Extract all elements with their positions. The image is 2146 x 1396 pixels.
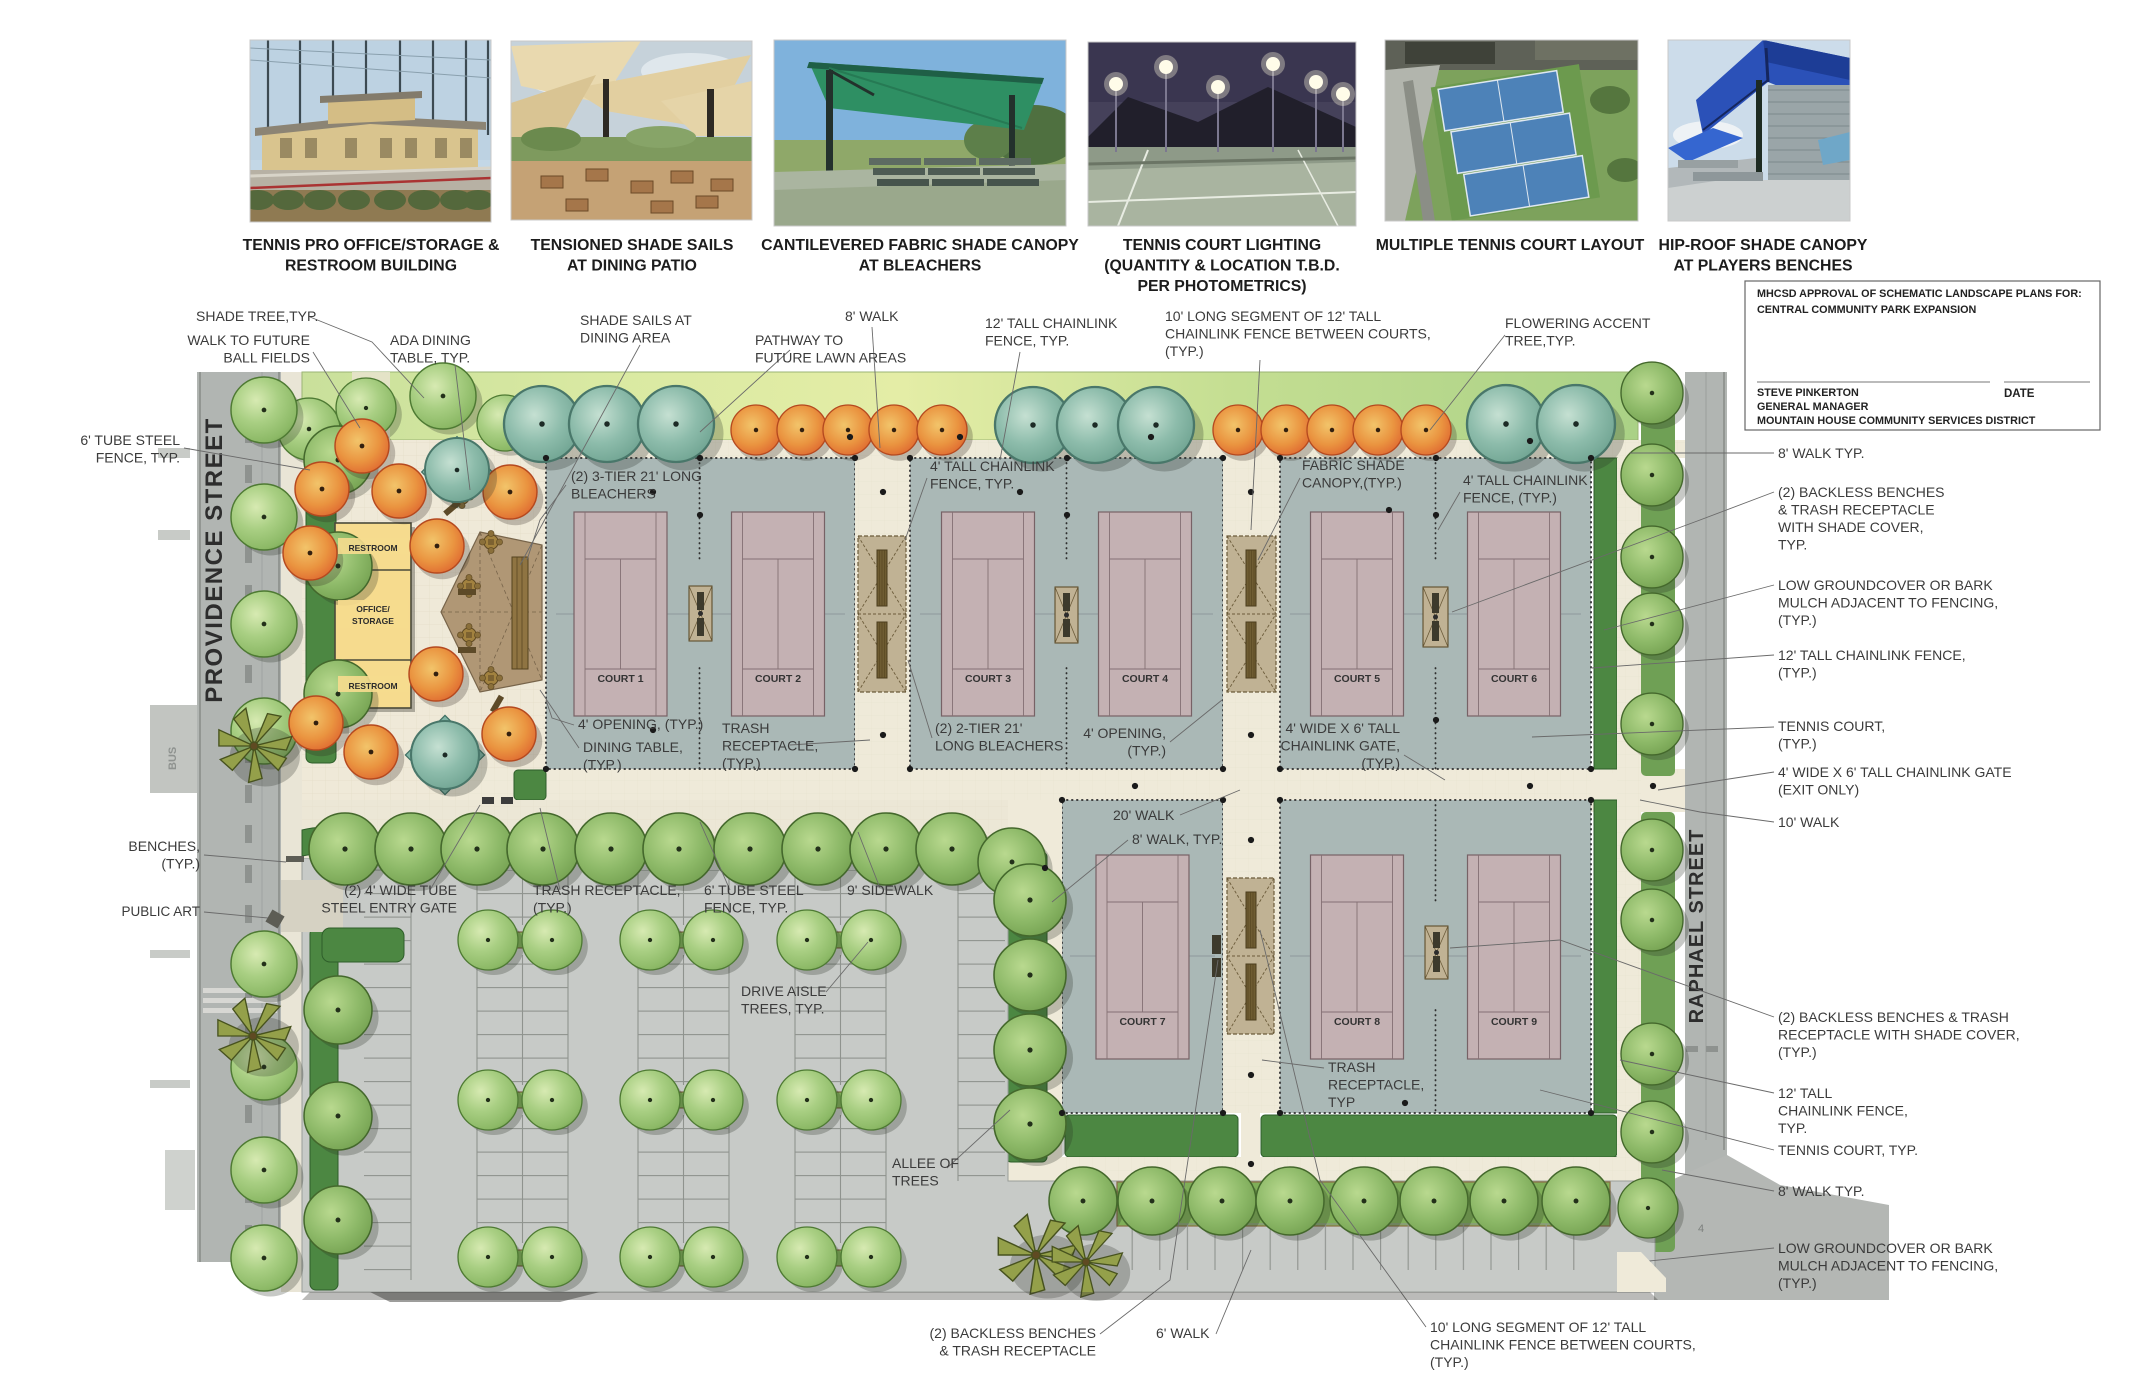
svg-text:GENERAL MANAGER: GENERAL MANAGER [1757,401,1869,413]
svg-text:TENNIS COURT,(TYP.): TENNIS COURT,(TYP.) [1778,718,1885,752]
svg-text:PUBLIC ART: PUBLIC ART [121,904,200,919]
svg-text:COURT 5: COURT 5 [1334,673,1380,685]
svg-text:8' WALK, TYP.: 8' WALK, TYP. [1132,831,1222,847]
svg-text:COURT 6: COURT 6 [1491,673,1537,685]
svg-text:10' LONG SEGMENT OF 12' TALLCH: 10' LONG SEGMENT OF 12' TALLCHAINLINK FE… [1165,308,1431,359]
svg-text:8' WALK TYP.: 8' WALK TYP. [1778,1183,1864,1199]
svg-text:RESTROOM: RESTROOM [348,681,397,691]
svg-text:PROVIDENCE STREET: PROVIDENCE STREET [201,417,228,703]
svg-text:HIP-ROOF SHADE CANOPYAT PLAYER: HIP-ROOF SHADE CANOPYAT PLAYERS BENCHES [1659,237,1868,275]
svg-text:12' TALL CHAINLINKFENCE, TYP.: 12' TALL CHAINLINKFENCE, TYP. [985,315,1118,349]
svg-text:MULTIPLE TENNIS COURT LAYOUT: MULTIPLE TENNIS COURT LAYOUT [1376,237,1645,254]
svg-text:WALK TO FUTUREBALL FIELDS: WALK TO FUTUREBALL FIELDS [187,332,310,366]
svg-text:(2) BACKLESS BENCHES& TRASH RE: (2) BACKLESS BENCHES& TRASH RECEPTACLEWI… [1778,484,1945,553]
svg-text:20' WALK: 20' WALK [1113,807,1175,823]
svg-text:SHADE TREE,TYP.: SHADE TREE,TYP. [196,308,318,324]
svg-text:12' TALL CHAINLINK FENCE,(TYP.: 12' TALL CHAINLINK FENCE,(TYP.) [1778,647,1966,681]
svg-text:9' SIDEWALK: 9' SIDEWALK [847,882,934,898]
svg-text:RESTROOM: RESTROOM [348,543,397,553]
svg-text:STEVE PINKERTON: STEVE PINKERTON [1757,387,1859,399]
svg-text:TENNIS COURT LIGHTING(QUANTITY: TENNIS COURT LIGHTING(QUANTITY & LOCATIO… [1104,237,1339,295]
svg-text:MHCSD APPROVAL OF SCHEMATIC LA: MHCSD APPROVAL OF SCHEMATIC LANDSCAPE PL… [1757,288,2082,300]
svg-text:COURT 1: COURT 1 [597,673,643,685]
svg-text:10' LONG SEGMENT OF 12' TALLCH: 10' LONG SEGMENT OF 12' TALLCHAINLINK FE… [1430,1319,1696,1370]
svg-text:LOW GROUNDCOVER OR BARKMULCH A: LOW GROUNDCOVER OR BARKMULCH ADJACENT TO… [1778,577,1998,628]
svg-text:8' WALK TYP.: 8' WALK TYP. [1778,445,1864,461]
svg-text:(2) BACKLESS BENCHES & TRASHRE: (2) BACKLESS BENCHES & TRASHRECEPTACLE W… [1778,1009,2020,1060]
svg-text:12' TALLCHAINLINK FENCE,TYP.: 12' TALLCHAINLINK FENCE,TYP. [1778,1085,1908,1136]
svg-text:6' TUBE STEELFENCE, TYP.: 6' TUBE STEELFENCE, TYP. [80,432,180,466]
svg-text:FLOWERING ACCENTTREE,TYP.: FLOWERING ACCENTTREE,TYP. [1505,315,1651,349]
svg-text:COURT 7: COURT 7 [1119,1016,1165,1028]
svg-text:BENCHES,(TYP.): BENCHES,(TYP.) [128,838,200,872]
svg-text:COURT 4: COURT 4 [1122,673,1168,685]
svg-text:CENTRAL COMMUNITY PARK EXPANSI: CENTRAL COMMUNITY PARK EXPANSION [1757,304,1977,316]
svg-text:RAPHAEL STREET: RAPHAEL STREET [1686,829,1708,1024]
svg-text:OFFICE/: OFFICE/ [356,604,390,614]
svg-text:TENNIS COURT, TYP.: TENNIS COURT, TYP. [1778,1142,1918,1158]
svg-text:TENNIS PRO OFFICE/STORAGE &RES: TENNIS PRO OFFICE/STORAGE &RESTROOM BUIL… [243,237,500,275]
svg-text:6' WALK: 6' WALK [1156,1325,1210,1341]
svg-text:COURT 3: COURT 3 [965,673,1011,685]
svg-text:COURT 9: COURT 9 [1491,1016,1537,1028]
svg-text:PATHWAY TOFUTURE LAWN AREAS: PATHWAY TOFUTURE LAWN AREAS [755,332,906,366]
svg-text:DATE: DATE [2004,388,2035,400]
svg-text:CANTILEVERED FABRIC SHADE CANO: CANTILEVERED FABRIC SHADE CANOPYAT BLEAC… [761,237,1079,275]
svg-text:10' WALK: 10' WALK [1778,814,1840,830]
svg-text:4' OPENING, (TYP.): 4' OPENING, (TYP.) [578,716,703,732]
svg-text:MOUNTAIN HOUSE COMMUNITY SERVI: MOUNTAIN HOUSE COMMUNITY SERVICES DISTRI… [1757,415,2036,427]
svg-text:SHADE SAILS ATDINING AREA: SHADE SAILS ATDINING AREA [580,312,692,346]
svg-text:COURT 8: COURT 8 [1334,1016,1380,1028]
svg-text:FABRIC SHADECANOPY,(TYP.): FABRIC SHADECANOPY,(TYP.) [1302,457,1405,491]
svg-text:4' WIDE X 6' TALL CHAINLINK GA: 4' WIDE X 6' TALL CHAINLINK GATE(EXIT ON… [1778,764,2012,798]
svg-text:COURT 2: COURT 2 [755,673,801,685]
svg-text:ADA DININGTABLE, TYP.: ADA DININGTABLE, TYP. [390,332,471,366]
svg-text:STORAGE: STORAGE [352,616,394,626]
svg-text:8' WALK: 8' WALK [845,308,899,324]
svg-text:TENSIONED SHADE SAILSAT DINING: TENSIONED SHADE SAILSAT DINING PATIO [531,237,734,275]
svg-text:4: 4 [1698,1223,1704,1235]
svg-text:(2) BACKLESS BENCHES& TRASH RE: (2) BACKLESS BENCHES& TRASH RECEPTACLE [930,1325,1097,1359]
svg-text:BUS: BUS [167,747,179,770]
svg-text:DRIVE AISLETREES, TYP.: DRIVE AISLETREES, TYP. [741,983,827,1017]
